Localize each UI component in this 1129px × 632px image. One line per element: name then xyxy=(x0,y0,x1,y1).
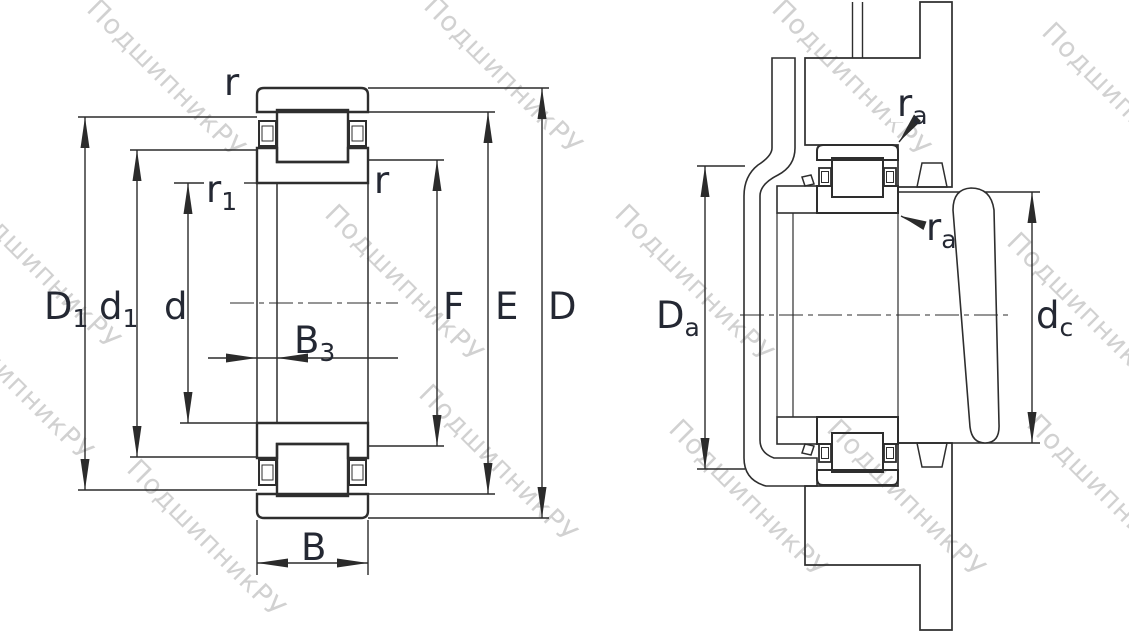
dim-label-E: E xyxy=(495,285,518,328)
left-view-cross-section: D1 d1 d F E D B3 B r r r1 xyxy=(44,61,577,575)
watermark-text: ПодшипникРУ xyxy=(121,454,292,625)
dim-label-B: B xyxy=(301,526,326,569)
watermark-text: ПодшипникРУ xyxy=(1021,409,1129,580)
bearing-dimension-drawing: ПодшипникРУ ПодшипникРУ ПодшипникРУ Подш… xyxy=(0,0,1129,632)
radius-label-ra-bottom: ra xyxy=(926,206,957,254)
outer-ring-bottom xyxy=(257,494,368,518)
outer-ring-top xyxy=(257,88,368,112)
inner-ring-top xyxy=(817,186,898,213)
dim-label-B3: B3 xyxy=(294,319,335,367)
watermark-text: ПодшипникРУ xyxy=(1001,227,1129,398)
watermark-text: ПодшипникРУ xyxy=(319,199,490,370)
radius-label-r1: r1 xyxy=(206,168,237,216)
watermark-text: ПодшипникРУ xyxy=(663,414,834,585)
radius-label-r-top: r xyxy=(224,61,240,104)
dim-label-D: D xyxy=(548,285,577,328)
inner-ring-top xyxy=(257,148,368,183)
dim-label-d: d xyxy=(164,285,188,328)
bearing-section-geometry xyxy=(230,88,398,518)
watermark-text: ПодшипникРУ xyxy=(821,414,992,585)
watermark-text: ПодшипникРУ xyxy=(609,199,780,370)
dim-label-d1: d1 xyxy=(99,285,138,333)
roller-top xyxy=(277,110,348,162)
radius-label-r-side: r xyxy=(374,159,390,202)
watermark-text: ПодшипникРУ xyxy=(0,186,126,357)
watermark-text: ПодшипникРУ xyxy=(413,379,584,550)
dim-label-F: F xyxy=(443,285,464,328)
watermark-text: ПодшипникРУ xyxy=(418,0,589,161)
roller-bottom xyxy=(277,444,348,496)
end-cap xyxy=(744,58,817,486)
drawing-canvas: ПодшипникРУ ПодшипникРУ ПодшипникРУ Подш… xyxy=(0,0,1129,632)
inner-ring-bottom xyxy=(257,423,368,458)
watermark-text: ПодшипникРУ xyxy=(1036,17,1129,188)
roller-top xyxy=(832,158,883,197)
